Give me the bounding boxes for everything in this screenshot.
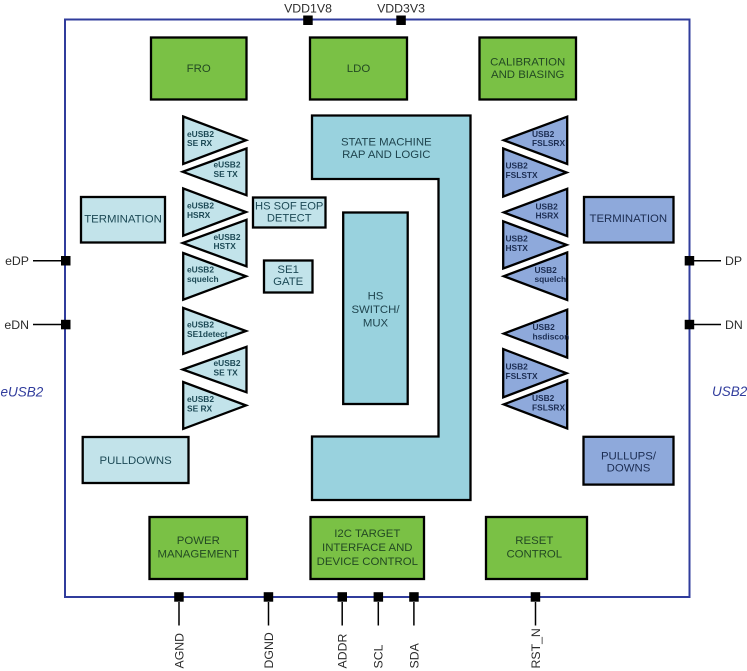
svg-text:RAP AND LOGIC: RAP AND LOGIC	[342, 149, 430, 161]
svg-text:TERMINATION: TERMINATION	[84, 213, 162, 225]
svg-text:squelch: squelch	[535, 274, 567, 284]
svg-text:MUX: MUX	[363, 318, 389, 330]
svg-text:SE1detect: SE1detect	[187, 329, 228, 339]
svg-text:HSTX: HSTX	[214, 241, 237, 251]
svg-text:SE1: SE1	[277, 264, 299, 276]
svg-text:DOWNS: DOWNS	[607, 463, 651, 475]
svg-text:STATE MACHINE: STATE MACHINE	[341, 137, 432, 149]
svg-text:SE RX: SE RX	[187, 138, 213, 148]
svg-text:DETECT: DETECT	[267, 213, 312, 225]
svg-text:FSLSTX: FSLSTX	[506, 371, 539, 381]
svg-text:SE TX: SE TX	[214, 368, 239, 378]
svg-text:TERMINATION: TERMINATION	[589, 213, 667, 225]
svg-text:FSLSTX: FSLSTX	[506, 170, 539, 180]
svg-text:GATE: GATE	[273, 276, 304, 288]
svg-text:HSTX: HSTX	[506, 243, 529, 253]
svg-text:POWER: POWER	[177, 535, 220, 547]
svg-text:eDN: eDN	[4, 318, 29, 332]
svg-text:ADDR: ADDR	[336, 634, 350, 669]
svg-text:eDP: eDP	[5, 254, 29, 268]
svg-text:DP: DP	[725, 254, 742, 268]
svg-text:AGND: AGND	[172, 633, 186, 669]
svg-text:HS SOF EOP: HS SOF EOP	[255, 200, 323, 212]
svg-text:FSLSRX: FSLSRX	[532, 138, 565, 148]
svg-text:SE RX: SE RX	[187, 404, 213, 414]
svg-text:RST_N: RST_N	[529, 628, 543, 668]
svg-text:FRO: FRO	[187, 63, 211, 75]
svg-text:PULLDOWNS: PULLDOWNS	[100, 455, 173, 467]
svg-text:HSRX: HSRX	[536, 211, 560, 221]
svg-text:squelch: squelch	[187, 274, 219, 284]
svg-text:DEVICE CONTROL: DEVICE CONTROL	[317, 556, 418, 568]
svg-text:eUSB2: eUSB2	[1, 385, 44, 400]
svg-text:AND BIASING: AND BIASING	[491, 69, 565, 81]
svg-text:PULLUPS/: PULLUPS/	[601, 450, 657, 462]
svg-text:SDA: SDA	[407, 642, 421, 668]
svg-text:MANAGEMENT: MANAGEMENT	[157, 548, 239, 560]
svg-text:SCL: SCL	[372, 644, 386, 668]
svg-text:RESET: RESET	[515, 535, 553, 547]
svg-text:USB2: USB2	[712, 384, 747, 399]
svg-text:SE TX: SE TX	[214, 169, 239, 179]
svg-text:hsdiscon: hsdiscon	[533, 332, 570, 342]
svg-text:CALIBRATION: CALIBRATION	[490, 57, 565, 69]
svg-text:SWITCH/: SWITCH/	[351, 304, 400, 316]
svg-text:INTERFACE AND: INTERFACE AND	[322, 542, 413, 554]
svg-text:VDD3V3: VDD3V3	[377, 2, 425, 16]
svg-text:DGND: DGND	[262, 632, 276, 668]
svg-text:I2C TARGET: I2C TARGET	[334, 528, 400, 540]
svg-text:LDO: LDO	[347, 63, 371, 75]
svg-text:HSRX: HSRX	[187, 210, 211, 220]
svg-text:CONTROL: CONTROL	[506, 549, 562, 561]
svg-text:VDD1V8: VDD1V8	[284, 2, 332, 16]
svg-text:DN: DN	[725, 318, 743, 332]
svg-text:HS: HS	[368, 291, 384, 303]
svg-text:FSLSRX: FSLSRX	[532, 403, 565, 413]
